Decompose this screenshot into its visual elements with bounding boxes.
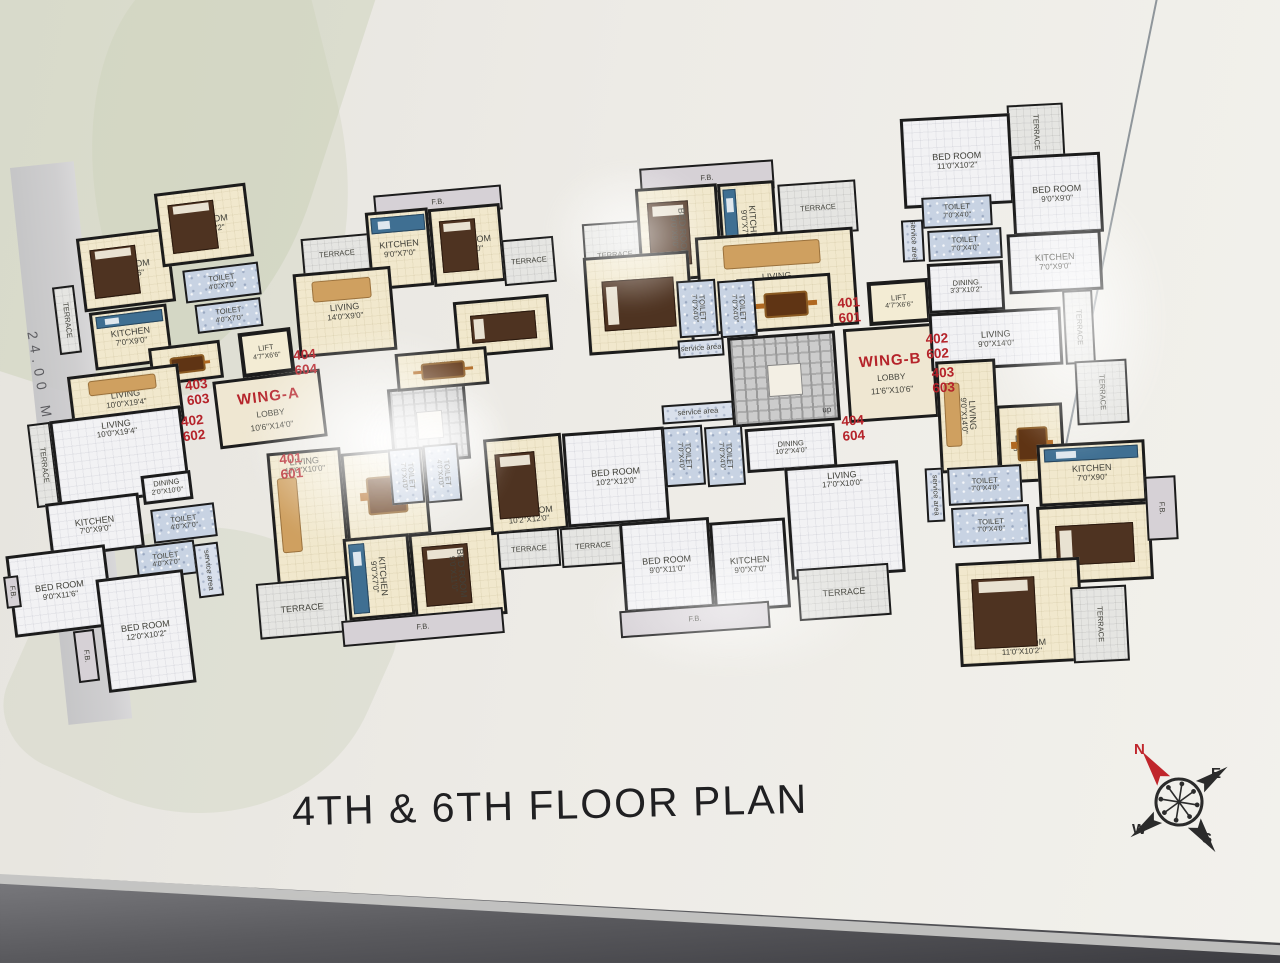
room-label: TERRACE — [37, 447, 50, 484]
room-label: KITCHEN7'0"X90" — [1072, 462, 1112, 483]
room-kitchen: KITCHEN9'0"X7'0" — [343, 533, 416, 620]
room-name: TERRACE — [61, 302, 74, 339]
room-label: DINING3'3"X10'2" — [950, 278, 983, 296]
room-label: TERRACE — [511, 544, 547, 555]
room-label: F.B. — [431, 198, 445, 207]
room-name: TERRACE — [800, 203, 836, 214]
room-label: TOILET7'0"X4'0" — [716, 442, 734, 471]
room-toilet: TOILET4'0"X7'0" — [150, 502, 218, 544]
room-service-area: service area — [661, 401, 734, 425]
room-name: TERRACE — [1074, 309, 1084, 345]
furniture-counter-v — [348, 543, 369, 614]
stairs-wing-b: up — [727, 330, 841, 427]
room-dims: 7'0"X4'0" — [971, 485, 999, 494]
room-name: F.B. — [431, 198, 445, 207]
room-label: DINING10'2"X4'0" — [775, 439, 808, 457]
room-label: TOILET4'0"X7'0" — [169, 513, 199, 532]
room-dims: 7'0"X4'0" — [397, 462, 407, 490]
room-dims: 7'0"X4'0" — [977, 526, 1005, 535]
room-label: TERRACE — [1097, 374, 1107, 410]
room-terrace: TERRACE — [560, 524, 627, 568]
room-name: TERRACE — [511, 544, 547, 555]
room-toilet: TOILET7'0"X4'0" — [951, 504, 1031, 548]
compass-e: E — [1211, 765, 1221, 782]
room-label: TERRACE — [280, 601, 324, 615]
furniture-sofa-v — [277, 477, 303, 554]
room-bed-room: BED ROOM12'0"X10'2" — [95, 569, 196, 693]
room-dining: DINING3'3"X10'2" — [927, 260, 1006, 314]
lobby-dims: 10'6"X14'0" — [250, 418, 294, 433]
room-label: KITCHEN9'0"X7'0" — [730, 554, 771, 576]
unit-number-401: 401601 — [837, 295, 862, 326]
room-label: LIVING17'0"X10'0" — [821, 469, 863, 491]
lobby-label: LOBBY — [256, 406, 285, 419]
room-name: F.B. — [82, 649, 92, 663]
room-name: TERRACE — [319, 249, 355, 260]
room-label: LIFT4'7"X6'6" — [252, 343, 282, 362]
room-bed-room: BED ROOM9'0"X11'0" — [619, 517, 715, 613]
room-label: TOILET7'0"X4'0" — [977, 517, 1006, 535]
unit-number-bottom: 601 — [280, 466, 304, 482]
room-label: TOILET7'0"X4'0" — [951, 236, 980, 254]
compass-n: N — [1134, 741, 1145, 758]
room-dims: 7'0"X4'0" — [951, 244, 979, 253]
room-dining: DINING2'0"X10'0" — [140, 470, 193, 505]
room-label: F.B. — [688, 615, 701, 624]
unit-number-bottom: 604 — [842, 428, 865, 444]
stair-core — [416, 410, 443, 439]
compass-s: S — [1202, 830, 1212, 847]
room-name: TERRACE — [511, 255, 547, 266]
room-name: TERRACE — [1095, 606, 1105, 642]
room-label: DINING2'0"X10'0" — [150, 478, 184, 498]
room-name: service area — [908, 220, 919, 261]
room-toilet: TOILET7'0"X4'0" — [388, 447, 426, 506]
room-bed-room: BED ROOM10'2"X12'0" — [562, 427, 670, 528]
room-lift: LIFT4'7"X6'6" — [867, 278, 932, 326]
furniture-table — [763, 291, 809, 318]
room-terrace: TERRACE — [52, 285, 82, 355]
room-label: TERRACE — [575, 541, 611, 552]
room-name: F.B. — [416, 622, 430, 631]
room-label: TOILET7'0"X4'0" — [971, 476, 1000, 494]
room-service-area: service area — [677, 337, 724, 358]
stairs-up-label: up — [822, 405, 832, 415]
unit-number-404: 404604 — [293, 347, 318, 378]
room-bed-room: BED ROOM11'0"X10'2'' — [955, 557, 1084, 667]
room-label: TERRACE — [1095, 606, 1105, 642]
furniture-sofa — [311, 277, 372, 303]
room-dims: 7'0"X9'0" — [1035, 262, 1075, 273]
room-label: TERRACE — [800, 203, 836, 214]
room-bed-room: BED ROOM11'0"X10'2" — [900, 113, 1015, 209]
room-name: F.B. — [8, 585, 18, 599]
room-bed-room: BED ROOM9'0"X9'0" — [428, 203, 507, 287]
room-service-area: service area — [193, 542, 224, 599]
room-label: TERRACE — [822, 585, 866, 598]
room-name: TERRACE — [575, 541, 611, 552]
room-label: BED ROOM9'0"X11'6" — [35, 579, 86, 604]
room-label: service area — [677, 407, 718, 418]
room-label: service area — [680, 342, 721, 353]
lobby-label: LOBBY — [877, 371, 906, 383]
room-dims: 11'0"X10'2" — [933, 160, 982, 172]
furniture-counter — [1044, 445, 1138, 463]
room-dims: 9'0"X14'0" — [958, 398, 969, 435]
furniture-bed — [89, 244, 141, 299]
unit-number-bottom: 603 — [186, 391, 210, 408]
room-bed-room: BED ROOM9'0"X9'0" — [1010, 152, 1104, 237]
room-label: KITCHEN9'0"X7'0" — [379, 238, 420, 260]
room-label: F.B. — [1157, 501, 1166, 514]
wing-a-lobby: WING-ALOBBY10'6"X14'0" — [212, 369, 327, 450]
wing-label: WING-A — [236, 384, 300, 409]
room-label: F.B. — [8, 585, 18, 599]
room-terrace: TERRACE — [1074, 359, 1129, 426]
room-lift: LIFT4'7"X6'6" — [237, 327, 295, 378]
room-label: F.B. — [416, 622, 430, 631]
room-service-area: service area — [901, 219, 925, 262]
unit-number-bottom: 602 — [182, 427, 206, 444]
room-toilet: TOILET7'0"X4'0" — [662, 425, 706, 488]
room-name: TERRACE — [280, 601, 324, 615]
unit-number-401: 401601 — [279, 451, 304, 482]
room-label: TOILET7'0"X4'0" — [675, 442, 693, 471]
unit-number-402: 402602 — [925, 331, 949, 361]
room-label: BED ROOM9'0"X9'0" — [1032, 183, 1082, 205]
unit-number-404: 404604 — [841, 413, 866, 444]
room-service-area: service area — [925, 468, 946, 523]
room-name: TERRACE — [1031, 114, 1041, 150]
unit-number-bottom: 603 — [932, 380, 955, 396]
room-dims: 10'2"X4'0" — [775, 447, 807, 457]
lobby-dims: 11'6"X10'6" — [871, 383, 914, 396]
room-label: KITCHEN7'0"X9'0" — [110, 325, 152, 349]
room-name: service area — [930, 474, 941, 515]
room-name: TERRACE — [1097, 374, 1107, 410]
room-name: TERRACE — [822, 585, 866, 598]
room-toilet: TOILET4'0"X7'0" — [194, 297, 263, 334]
room-dims: 9'0"X11'0" — [643, 564, 693, 576]
unit-number-402: 402602 — [180, 413, 206, 445]
room-toilet: TOILET7'0"X4'0" — [717, 279, 758, 338]
room-label: LIVING14'0"X9'0" — [326, 301, 364, 323]
room-name: service area — [677, 407, 718, 418]
room-label: service area — [930, 474, 941, 515]
furniture-bed-h — [470, 310, 537, 344]
room-living: LIVING14'0"X9'0" — [293, 266, 398, 358]
room-dims: 7'0"X4'0" — [728, 295, 738, 323]
room-label: TOILET4'0"X7'0" — [151, 550, 181, 569]
room-terrace: TERRACE — [256, 576, 349, 639]
room-toilet: TOILET7'0"X4'0" — [927, 227, 1003, 262]
room-terrace: TERRACE — [1007, 103, 1066, 162]
room-label: TERRACE — [61, 302, 74, 339]
furniture-table — [421, 360, 466, 381]
room-name: F.B. — [1157, 501, 1166, 514]
room-name: F.B. — [700, 174, 713, 183]
room-label: KITCHEN9'0"X7'0" — [368, 556, 390, 597]
room-label: TOILET7'0"X4'0" — [943, 203, 972, 221]
room-label: TOILET4'0"X7'0" — [207, 273, 237, 292]
room-label: BED ROOM9'0"X11'0" — [642, 554, 692, 576]
room-dims: 10'0"X19'4" — [96, 427, 138, 441]
room-toilet: TOILET7'0"X4'0" — [676, 279, 719, 339]
room-name: F.B. — [688, 615, 701, 624]
room-dims: 14'0"X9'0" — [327, 311, 364, 323]
room-label: service area — [908, 220, 919, 261]
unit-number-403: 403603 — [931, 365, 955, 395]
furniture-bed — [971, 576, 1038, 650]
wing-label: WING-B — [858, 349, 922, 370]
room-label: F.B. — [82, 649, 92, 663]
room-dims: 7'0"X4'0" — [688, 295, 698, 323]
furniture-sofa — [723, 239, 821, 270]
unit-number-bottom: 602 — [926, 346, 949, 362]
room-label: TERRACE — [1074, 309, 1084, 345]
room-label: TOILET7'0"X4'0" — [688, 294, 706, 323]
room-label: TERRACE — [511, 255, 547, 266]
compass-w: W — [1132, 821, 1147, 838]
room-name: service area — [202, 549, 215, 591]
room-kitchen: KITCHEN9'0"X7'0" — [709, 517, 791, 612]
room-label: TOILET7'0"X4'0" — [397, 461, 416, 490]
floor-plan-poster: 24.00 METER WIDE ROAD TERRACEBED ROOM9'0… — [0, 0, 1280, 963]
room-terrace: TERRACE — [497, 528, 561, 570]
furniture-bed — [438, 218, 479, 273]
room-dims: 7'0"X90" — [1072, 473, 1112, 484]
room-toilet: TOILET7'0"X4'0" — [921, 194, 993, 229]
room-label: BED ROOM10'2"X12'0" — [591, 466, 641, 488]
room-dims: 3'3"X10'2" — [950, 286, 982, 295]
room-f-b: F.B. — [73, 629, 100, 683]
stair-core — [767, 363, 804, 398]
room-terrace: TERRACE — [1062, 289, 1096, 364]
room-toilet: TOILET4'0"X4'0" — [423, 443, 463, 504]
room-toilet: TOILET4'0"X7'0" — [182, 261, 261, 303]
room-dims: 4'0"X4'0" — [433, 459, 443, 487]
room-terrace: TERRACE — [796, 563, 891, 621]
room-label: TERRACE — [1031, 114, 1041, 150]
furniture-bed — [494, 451, 539, 519]
room-dining: DINING10'2"X4'0" — [395, 346, 490, 392]
room-bed-room: BED ROOM12'0"X10'2" — [154, 183, 254, 268]
room-dims: 11'0"X10'2'' — [997, 647, 1046, 659]
room-name: TERRACE — [37, 447, 50, 484]
room-label: KITCHEN7'0"X9'0" — [74, 514, 116, 538]
room-toilet: TOILET7'0"X4'0" — [704, 425, 746, 488]
room-dims: 9'0"X7'0" — [380, 248, 420, 260]
room-label: LIFT4'7"X6'6" — [885, 293, 914, 311]
room-label: service area — [202, 549, 215, 591]
room-label: BED ROOM12'0"X10'2" — [121, 619, 172, 644]
room-label: KITCHEN7'0"X9'0" — [1035, 251, 1075, 272]
room-dims: 9'0"X14'0" — [978, 339, 1015, 350]
room-name: service area — [680, 342, 721, 353]
room-label: LIVING9'0"X14'0" — [958, 397, 979, 434]
room-label: TOILET7'0"X4'0" — [728, 294, 746, 323]
room-label: TOILET4'0"X4'0" — [433, 458, 452, 487]
room-f-b: F.B. — [1144, 475, 1178, 541]
room-dims: 17'0"X10'0" — [822, 479, 863, 491]
room-label: TOILET4'0"X7'0" — [214, 306, 244, 325]
compass-rose: N E W S — [1106, 730, 1256, 880]
room-dims: 4'7"X6'6" — [885, 301, 913, 311]
room-dims: 7'0"X4'0" — [943, 211, 971, 220]
room-label: TERRACE — [319, 249, 355, 260]
unit-number-403: 403603 — [184, 377, 210, 409]
room-terrace: TERRACE — [1070, 585, 1130, 664]
room-label: LIVING9'0"X14'0" — [977, 329, 1014, 350]
room-dims: 7'0"X9'0" — [75, 524, 115, 538]
room-bed-room: BED ROOM10'2"X12'0" — [483, 433, 569, 535]
room-toilet: TOILET7'0"X4'0" — [947, 464, 1023, 506]
room-label: LIVING10'0"X19'4" — [95, 417, 138, 441]
furniture-counter — [370, 214, 425, 235]
room-label: F.B. — [700, 174, 713, 183]
furniture-counter — [95, 309, 163, 329]
room-kitchen: KITCHEN7'0"X9'0" — [1006, 230, 1103, 295]
unit-number-bottom: 601 — [838, 310, 861, 326]
room-dims: 10'2"X12'0" — [592, 476, 642, 488]
unit-number-bottom: 604 — [294, 362, 318, 378]
room-kitchen: KITCHEN7'0"X90" — [1036, 439, 1147, 507]
room-terrace: TERRACE — [501, 236, 557, 286]
room-label: BED ROOM11'0"X10'2" — [932, 150, 982, 172]
room-dims: 9'0"X7'0" — [730, 564, 770, 576]
furniture-bed-h — [601, 277, 676, 332]
furniture-bed — [167, 199, 219, 254]
